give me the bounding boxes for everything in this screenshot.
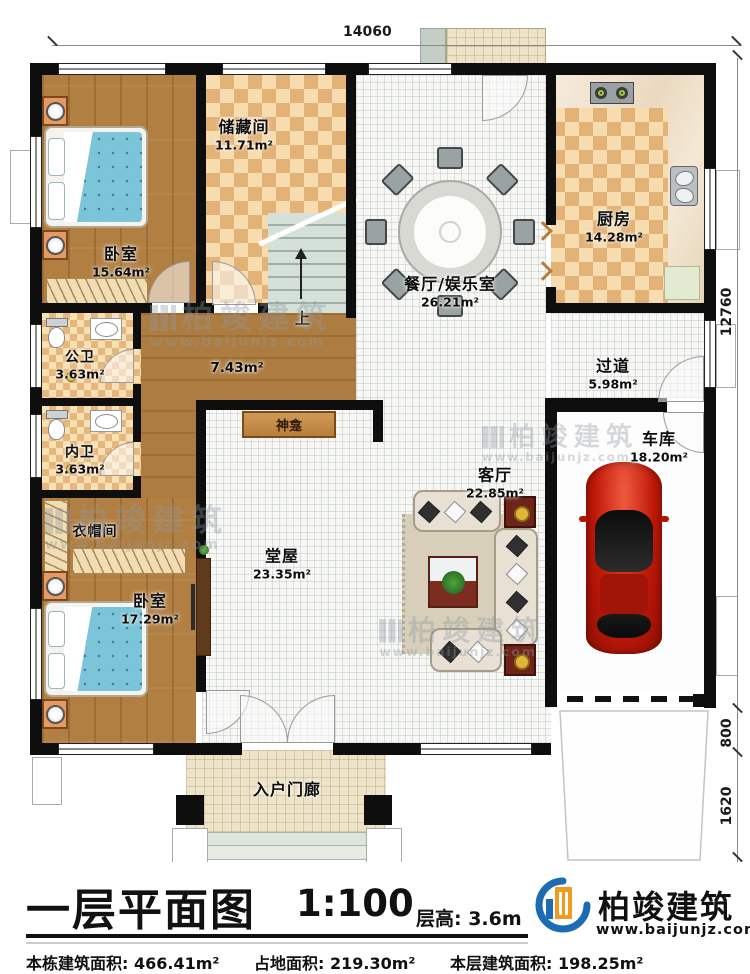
sofa-cushion	[506, 535, 529, 558]
brand-url: www.baijunjz.com	[596, 922, 750, 938]
plan-scale: 1:100	[296, 882, 414, 925]
cloak-wardrobe	[72, 548, 186, 574]
car-mirror	[579, 516, 588, 522]
room-label-living: 客厅22.85m²	[466, 462, 524, 501]
tv-cabinet	[196, 558, 211, 656]
bath-sink	[90, 410, 122, 432]
sofa-cushion	[506, 591, 529, 614]
stat-total-area: 本栋建筑面积: 466.41m²	[26, 950, 219, 974]
wall	[30, 490, 141, 498]
wall	[373, 410, 383, 442]
title-block: 一层平面图 1:100 层高: 3.6m 本栋建筑面积: 466.41m² 占地…	[0, 862, 750, 974]
window	[420, 743, 532, 755]
dim-right-label-2: 800	[719, 715, 735, 750]
wall	[196, 400, 383, 410]
stair-arrow-head	[295, 242, 307, 259]
nightstand	[42, 230, 68, 260]
wall	[133, 313, 141, 349]
porch-column	[364, 795, 392, 825]
bath-sink	[90, 318, 122, 340]
window	[58, 743, 154, 755]
sofa-cushion	[444, 501, 467, 524]
wall	[545, 412, 557, 707]
pillow	[48, 611, 65, 647]
wall	[258, 303, 268, 313]
room-label-private-bath: 内卫3.63m²	[55, 442, 104, 477]
car	[586, 462, 662, 654]
window	[30, 608, 42, 700]
bed-sheet	[64, 132, 100, 222]
wall	[346, 63, 356, 318]
stairs-up-label: 上	[295, 308, 311, 329]
burner	[595, 87, 607, 99]
fridge	[664, 266, 700, 300]
room-label-bedroom2: 卧室17.29m²	[121, 588, 179, 627]
wall	[133, 384, 141, 442]
room-label-cloakroom: 衣帽间	[73, 521, 118, 541]
room-label-corridor: 7.43m²	[210, 360, 263, 376]
title-underline	[26, 934, 528, 938]
toilet	[46, 410, 68, 442]
car-windshield	[595, 510, 653, 572]
burner	[616, 87, 628, 99]
room-label-hall: 堂屋23.35m²	[253, 543, 311, 582]
window	[58, 63, 166, 75]
plant	[199, 545, 209, 555]
room-label-bedroom1: 卧室15.64m²	[92, 241, 150, 280]
nightstand	[42, 96, 68, 126]
room-label-public-bath: 公卫3.63m²	[55, 347, 104, 382]
window	[368, 63, 452, 75]
sofa-cushion	[506, 563, 529, 586]
car-mirror	[660, 516, 669, 522]
chair	[365, 219, 387, 245]
side-table	[504, 644, 536, 676]
driveway-outline	[545, 705, 730, 867]
brand-logo-icon	[533, 874, 593, 936]
toilet	[46, 318, 68, 350]
nightstand	[42, 699, 68, 729]
nightstand	[42, 571, 68, 601]
tv-screen	[191, 584, 195, 630]
pillow	[48, 138, 65, 176]
wall	[546, 303, 716, 313]
stat-floor-area: 本层建筑面积: 198.25m²	[450, 950, 643, 974]
plant	[442, 571, 465, 594]
sofa	[430, 628, 502, 672]
lamp	[514, 506, 530, 522]
sink-bowl	[673, 186, 695, 205]
shrine: 神龛	[242, 411, 336, 438]
wall	[30, 303, 152, 313]
sofa-cushion	[470, 501, 493, 524]
dining-table	[398, 180, 502, 284]
pillow	[48, 653, 65, 689]
dim-right-label-1: 12760	[719, 285, 735, 340]
window-sill	[716, 596, 738, 676]
corridor-floor	[141, 313, 356, 403]
window	[30, 136, 42, 228]
room-label-garage: 车库18.20m²	[630, 426, 688, 465]
mattress	[64, 132, 142, 222]
stove	[590, 82, 634, 104]
wall	[30, 398, 141, 406]
bed-sheet	[64, 607, 100, 691]
wall	[196, 63, 206, 313]
window	[704, 320, 716, 388]
sofa	[494, 528, 538, 646]
side-table	[504, 496, 536, 528]
window-sill	[32, 757, 62, 805]
sofa-cushion	[506, 619, 529, 642]
room-label-hallway: 过道5.98m²	[588, 353, 637, 392]
car-rear-window	[597, 614, 651, 638]
shrine-label: 神龛	[276, 415, 302, 434]
floor-plan-page: 神龛	[0, 0, 750, 974]
porch-column	[176, 795, 204, 825]
window	[30, 414, 42, 478]
wall	[184, 303, 214, 313]
room-label-kitchen: 厨房14.28m²	[585, 206, 643, 245]
window-sill	[10, 150, 32, 224]
sofa-cushion	[439, 641, 462, 664]
window	[30, 324, 42, 388]
sofa-cushion	[418, 501, 441, 524]
sofa-cushion	[467, 641, 490, 664]
window	[704, 168, 716, 250]
wall	[545, 398, 667, 412]
pillow	[48, 182, 65, 220]
chair	[437, 147, 463, 169]
plan-title: 一层平面图	[26, 874, 256, 938]
chair	[513, 219, 535, 245]
window	[222, 63, 326, 75]
corridor-strip-floor	[141, 400, 196, 500]
lamp	[514, 654, 530, 670]
stat-footprint-area: 占地面积: 219.30m²	[254, 950, 415, 974]
staircase	[268, 213, 346, 313]
car-cabin	[600, 574, 648, 614]
sink-bowl	[673, 169, 695, 188]
bed	[44, 126, 148, 228]
room-label-storage: 储藏间11.71m²	[215, 114, 273, 153]
room-label-porch: 入户门廊	[253, 776, 321, 800]
dim-top-label: 14060	[340, 24, 395, 40]
kitchen-sink	[670, 166, 698, 206]
dim-line-right	[737, 58, 738, 862]
porch-step-2	[198, 845, 376, 860]
floor-height-label: 层高: 3.6m	[416, 904, 522, 931]
dim-right-label-3: 1620	[719, 784, 735, 829]
garage-door	[567, 696, 695, 702]
wardrobe	[46, 278, 148, 305]
cloak-wardrobe	[44, 500, 68, 574]
dim-line-top	[52, 45, 740, 46]
wall	[546, 63, 556, 225]
title-underline-shadow	[26, 942, 528, 944]
table-center	[439, 221, 461, 243]
coffee-table	[428, 556, 478, 608]
room-label-dining: 餐厅/娱乐室26.21m²	[404, 271, 496, 310]
